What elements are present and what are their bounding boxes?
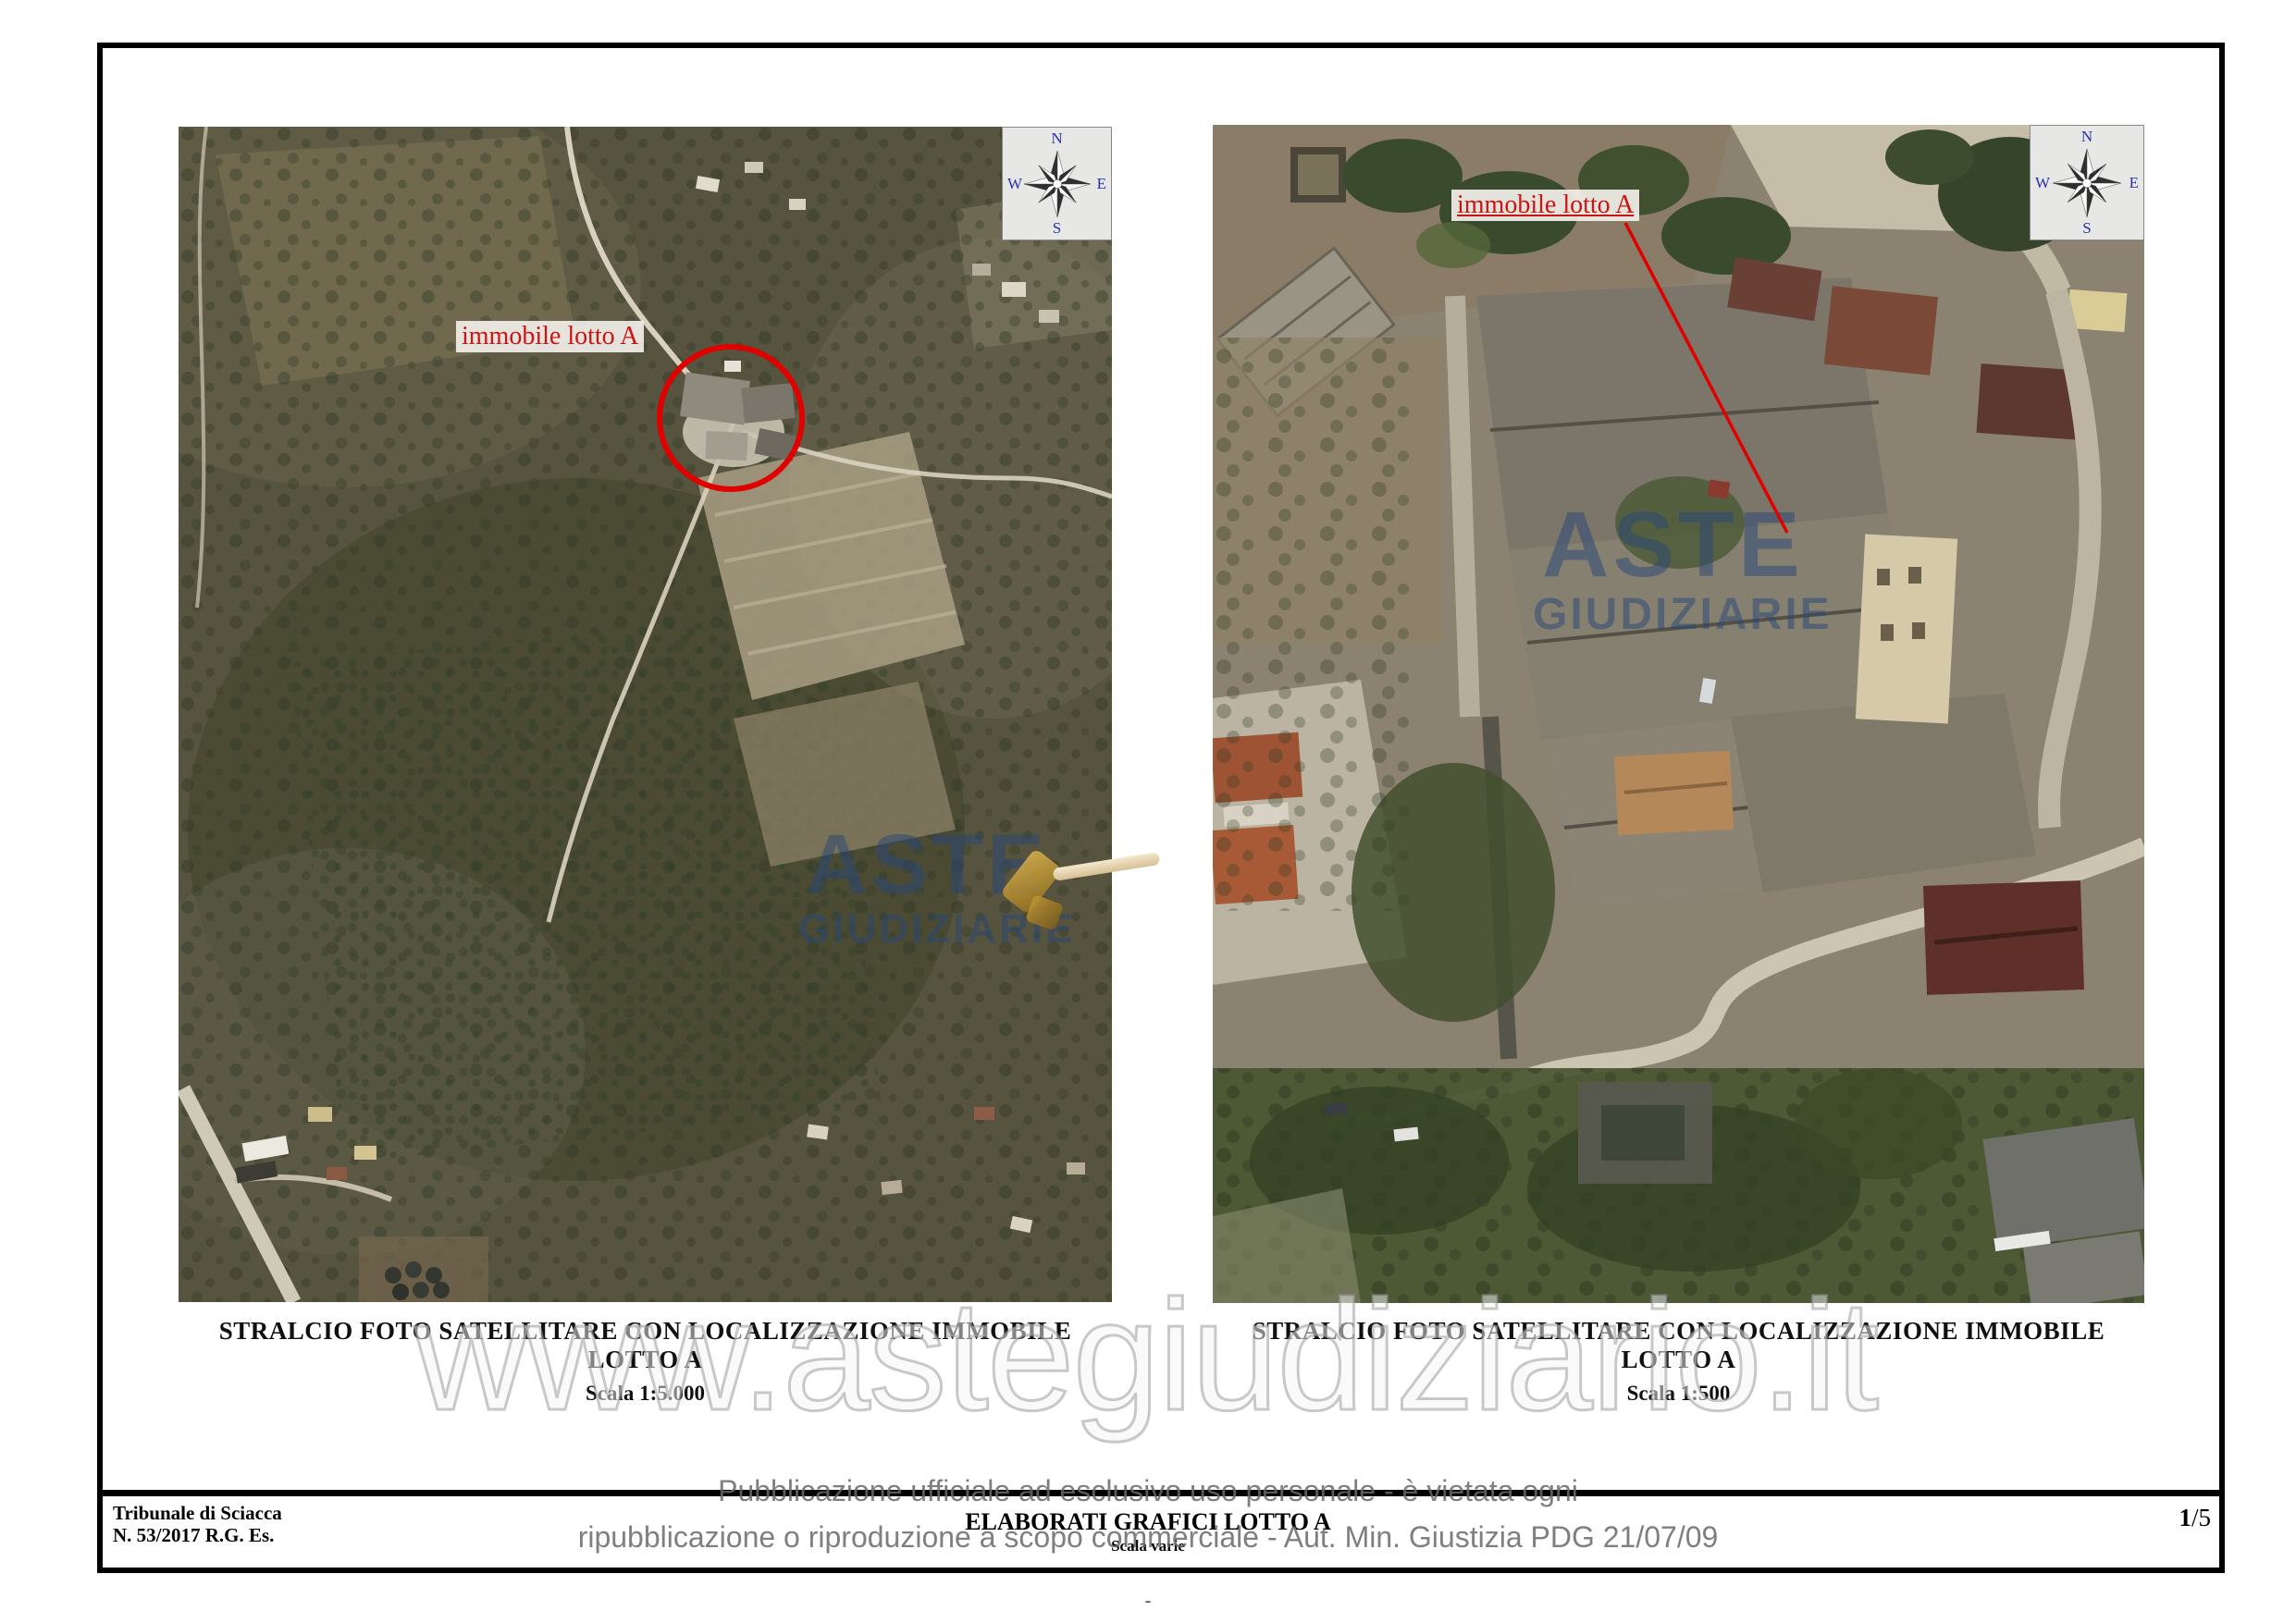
satellite-photo-wide [179, 127, 1112, 1302]
compass-star-icon [1021, 148, 1093, 220]
property-label-left: immobile lotto A [456, 321, 644, 352]
compass-north-label: N [1051, 129, 1062, 148]
satellite-photo-closeup [1213, 125, 2144, 1303]
satellite-panel-right: ASTE GIUDIZIARIE immobile lotto A [1213, 125, 2144, 1303]
compass-west-label: W [1007, 175, 1022, 193]
compass-south-label: S [1053, 219, 1061, 238]
photo-watermark-line2: GIUDIZIARIE [1533, 590, 1833, 639]
compass-north-label: N [2081, 128, 2092, 146]
disclaimer-line2: ripubblicazione o riproduzione a scopo c… [0, 1520, 2296, 1555]
compass-rose-right: N S W E [2030, 125, 2144, 240]
compass-star-icon [2050, 146, 2124, 220]
satellite-panel-left: ASTE GIUDIZIARIE immobile lotto A [179, 127, 1112, 1302]
site-watermark: www.astegiudiziario.it [414, 1265, 1877, 1446]
photo-watermark-giudiziarie-right: GIUDIZIARIE [1533, 593, 1833, 637]
compass-west-label: W [2035, 174, 2050, 192]
property-label-text: immobile lotto A [1457, 191, 1634, 219]
disclaimer-line1: Pubblicazione ufficiale ad esclusivo uso… [0, 1474, 2296, 1508]
photo-watermark-aste-right: ASTE [1542, 498, 1804, 591]
property-label-text: immobile lotto A [462, 322, 638, 350]
compass-south-label: S [2082, 219, 2091, 238]
compass-east-label: E [1097, 175, 1106, 193]
document-page: ASTE GIUDIZIARIE immobile lotto A [0, 0, 2296, 1623]
photo-watermark-line1: ASTE [1542, 493, 1804, 596]
compass-east-label: E [2129, 174, 2139, 192]
property-label-right: immobile lotto A [1451, 190, 1639, 221]
compass-rose-left: N S W E [1002, 127, 1112, 240]
footnote-dash: - [0, 1591, 2296, 1612]
